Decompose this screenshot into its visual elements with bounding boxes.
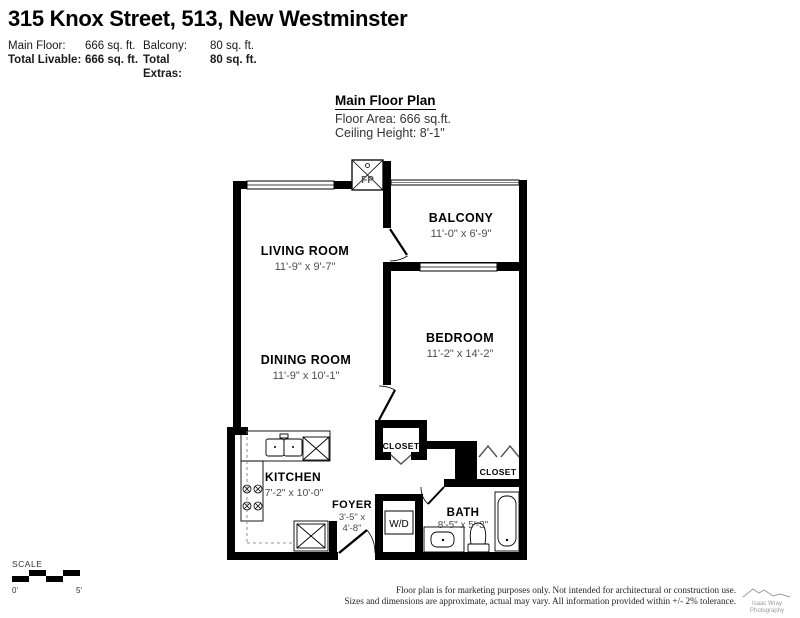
plan-ceiling-height: Ceiling Height: 8'-1" <box>335 126 451 140</box>
balcony-label: Balcony: <box>143 39 210 53</box>
scale-end-label: 5' <box>76 586 82 595</box>
total-livable-label: Total Livable: <box>8 53 85 81</box>
kitchen-dims: 7'-2" x 10'-0" <box>265 487 324 499</box>
balcony-railing <box>391 180 519 185</box>
bath-door <box>421 487 444 504</box>
plan-floor-area: Floor Area: 666 sq.ft. <box>335 112 451 126</box>
area-stats-row-1: Main Floor: 666 sq. ft. Balcony: 80 sq. … <box>8 39 407 53</box>
dining-room-dims: 11'-9" x 10'-1" <box>273 370 340 382</box>
bath-dims: 8'-5" x 5'-3" <box>438 520 489 531</box>
washer-dryer-icon: W/D <box>385 511 413 534</box>
disclaimer-line-1: Floor plan is for marketing purposes onl… <box>296 585 736 596</box>
scale-label: SCALE <box>12 559 42 569</box>
balcony-value: 80 sq. ft. <box>210 39 280 53</box>
fireplace-label: FP <box>361 175 374 186</box>
fridge-icon <box>294 521 328 551</box>
foyer-closet-label: CLOSET <box>383 441 420 451</box>
logo-text-line2: Photography <box>750 608 784 614</box>
total-extras-label: Total Extras: <box>143 53 210 81</box>
page-title: 315 Knox Street, 513, New Westminster <box>8 6 407 32</box>
balcony-dims: 11'-0" x 6'-9" <box>431 228 492 240</box>
bedroom-door <box>379 386 395 420</box>
photographer-logo: Isaac Wray Photography <box>740 582 795 615</box>
area-stats-row-2: Total Livable: 666 sq. ft. Total Extras:… <box>8 53 407 81</box>
disclaimer-line-2: Sizes and dimensions are approximate, ac… <box>296 596 736 607</box>
living-room-dims: 11'-9" x 9'-7" <box>275 261 336 273</box>
floor-plan-page: 315 Knox Street, 513, New Westminster Ma… <box>0 0 800 618</box>
total-livable-value: 666 sq. ft. <box>85 53 143 81</box>
mountain-icon <box>743 589 790 597</box>
window-bedroom <box>420 263 497 271</box>
foyer-label: FOYER <box>332 499 372 511</box>
foyer-dims-line1: 3'-5" x <box>339 512 366 523</box>
bedroom-label: BEDROOM <box>426 331 494 345</box>
disclaimer: Floor plan is for marketing purposes onl… <box>296 585 736 607</box>
plan-title: Main Floor Plan <box>335 94 436 110</box>
foyer-closet-bifold-door-icon <box>391 455 411 464</box>
living-room-label: LIVING ROOM <box>261 244 349 258</box>
listing-header: 315 Knox Street, 513, New Westminster Ma… <box>8 6 407 81</box>
fireplace-icon: FP <box>352 160 383 190</box>
area-stats: Main Floor: 666 sq. ft. Balcony: 80 sq. … <box>8 39 407 81</box>
total-extras-value: 80 sq. ft. <box>210 53 280 81</box>
logo-text-line1: Isaac Wray <box>752 601 782 607</box>
scale-bar-segments <box>12 570 80 582</box>
scale-bar: SCALE 0' 5' <box>8 556 98 601</box>
stove-burners-icon <box>243 485 262 510</box>
washer-dryer-label: W/D <box>389 519 408 530</box>
main-floor-value: 666 sq. ft. <box>85 39 143 53</box>
scale-start-label: 0' <box>12 586 18 595</box>
bedroom-closet-bifold-doors-icon <box>479 446 519 457</box>
kitchen-label: KITCHEN <box>265 470 321 484</box>
dining-room-label: DINING ROOM <box>261 353 352 367</box>
foyer-dims-line2: 4'-8" <box>343 523 362 534</box>
balcony-door <box>390 229 408 261</box>
window-living-room <box>247 181 334 189</box>
main-floor-label: Main Floor: <box>8 39 85 53</box>
bedroom-closet-label: CLOSET <box>480 467 517 477</box>
bedroom-dims: 11'-2" x 14'-2" <box>427 348 494 360</box>
bathtub-icon <box>495 492 519 551</box>
balcony-label: BALCONY <box>429 211 494 225</box>
floor-plan-drawing: FP <box>200 150 560 575</box>
dishwasher-icon <box>303 437 329 460</box>
bath-label: BATH <box>447 507 480 519</box>
plan-info: Main Floor Plan Floor Area: 666 sq.ft. C… <box>335 94 451 140</box>
kitchen-sink-icon <box>266 434 302 456</box>
